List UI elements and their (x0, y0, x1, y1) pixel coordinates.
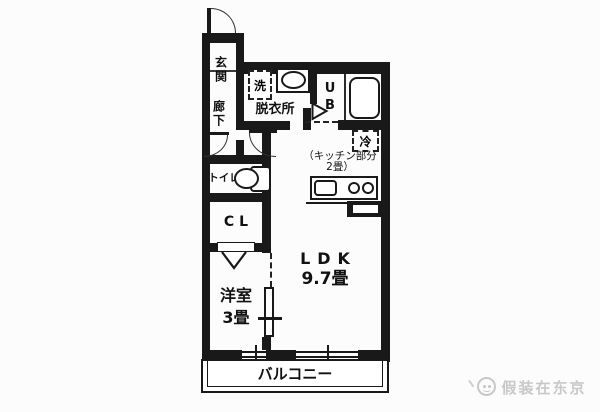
western-room-name: 洋室 (220, 285, 252, 307)
window-west-bottom-line (242, 356, 266, 358)
bath-door-icon (311, 102, 329, 121)
fridge-label: 冷 (359, 133, 371, 150)
western-room-size: 3畳 (222, 307, 249, 329)
wall-bath-divider (310, 74, 317, 104)
wall-bottom-c (358, 350, 390, 359)
toilet-bowl (234, 168, 259, 189)
kitchen-burner-right (362, 182, 374, 194)
washing-machine-box: 洗 (248, 70, 272, 100)
closet-folding-door-icon (220, 251, 248, 270)
western-room-label: 洋室 3畳 (205, 284, 267, 330)
kitchen-note-line2: 2畳） (326, 162, 354, 174)
kitchen-counter-end-slot (353, 205, 378, 213)
entrance-door-swing-arc (211, 8, 236, 33)
watermark-logo-mouth (483, 387, 491, 392)
window-west-top-line (242, 351, 266, 353)
sliding-door-track-dashed (270, 253, 272, 287)
balcony-label: バルコニー (240, 364, 350, 382)
wall-bottom-b (266, 350, 296, 359)
kitchen-counter-edge-line (306, 202, 347, 204)
kitchen-sink (314, 180, 337, 196)
watermark-logo-tick (468, 379, 476, 388)
wall-toilet-bottom (202, 193, 271, 202)
kitchen-note: （キッチン部分 2畳） (300, 150, 380, 174)
ldk-name: LDK (293, 248, 357, 269)
fridge-box: 冷 (352, 130, 379, 152)
sliding-door-leaf (264, 287, 274, 337)
hallway-label: 廊下 (209, 86, 229, 142)
wall-closet-bottom-left (202, 243, 217, 252)
kitchen-burner-left (348, 182, 360, 194)
washbasin-oval (281, 71, 306, 89)
wall-column-right-lower (262, 337, 271, 350)
closet-label: CL (210, 213, 262, 231)
unit-bath-label-u: U (325, 80, 336, 97)
sliding-door-tick (258, 317, 282, 320)
watermark-text: 假装在东京 (499, 378, 589, 396)
wall-corridor-stub (236, 140, 244, 160)
bath-boundary-dashed-line (305, 121, 338, 123)
ldk-label: LDK 9.7畳 (288, 246, 362, 292)
dressing-room-label: 脱衣所 (240, 99, 310, 115)
ldk-door-swing-arc (249, 133, 276, 157)
bathtub (349, 77, 380, 119)
ldk-size: 9.7畳 (301, 269, 348, 290)
wall-bottom-a (202, 350, 242, 359)
watermark-logo-icon (477, 377, 496, 396)
wall-bath-bottom (338, 120, 390, 130)
bath-room-divider-line (344, 74, 346, 120)
washing-machine-label: 洗 (254, 77, 266, 94)
floorplan-image: 洗 脱衣所 U B 冷 （キッチン部分 2畳） トイレ CL 洋室 3畳 LDK… (0, 0, 600, 412)
